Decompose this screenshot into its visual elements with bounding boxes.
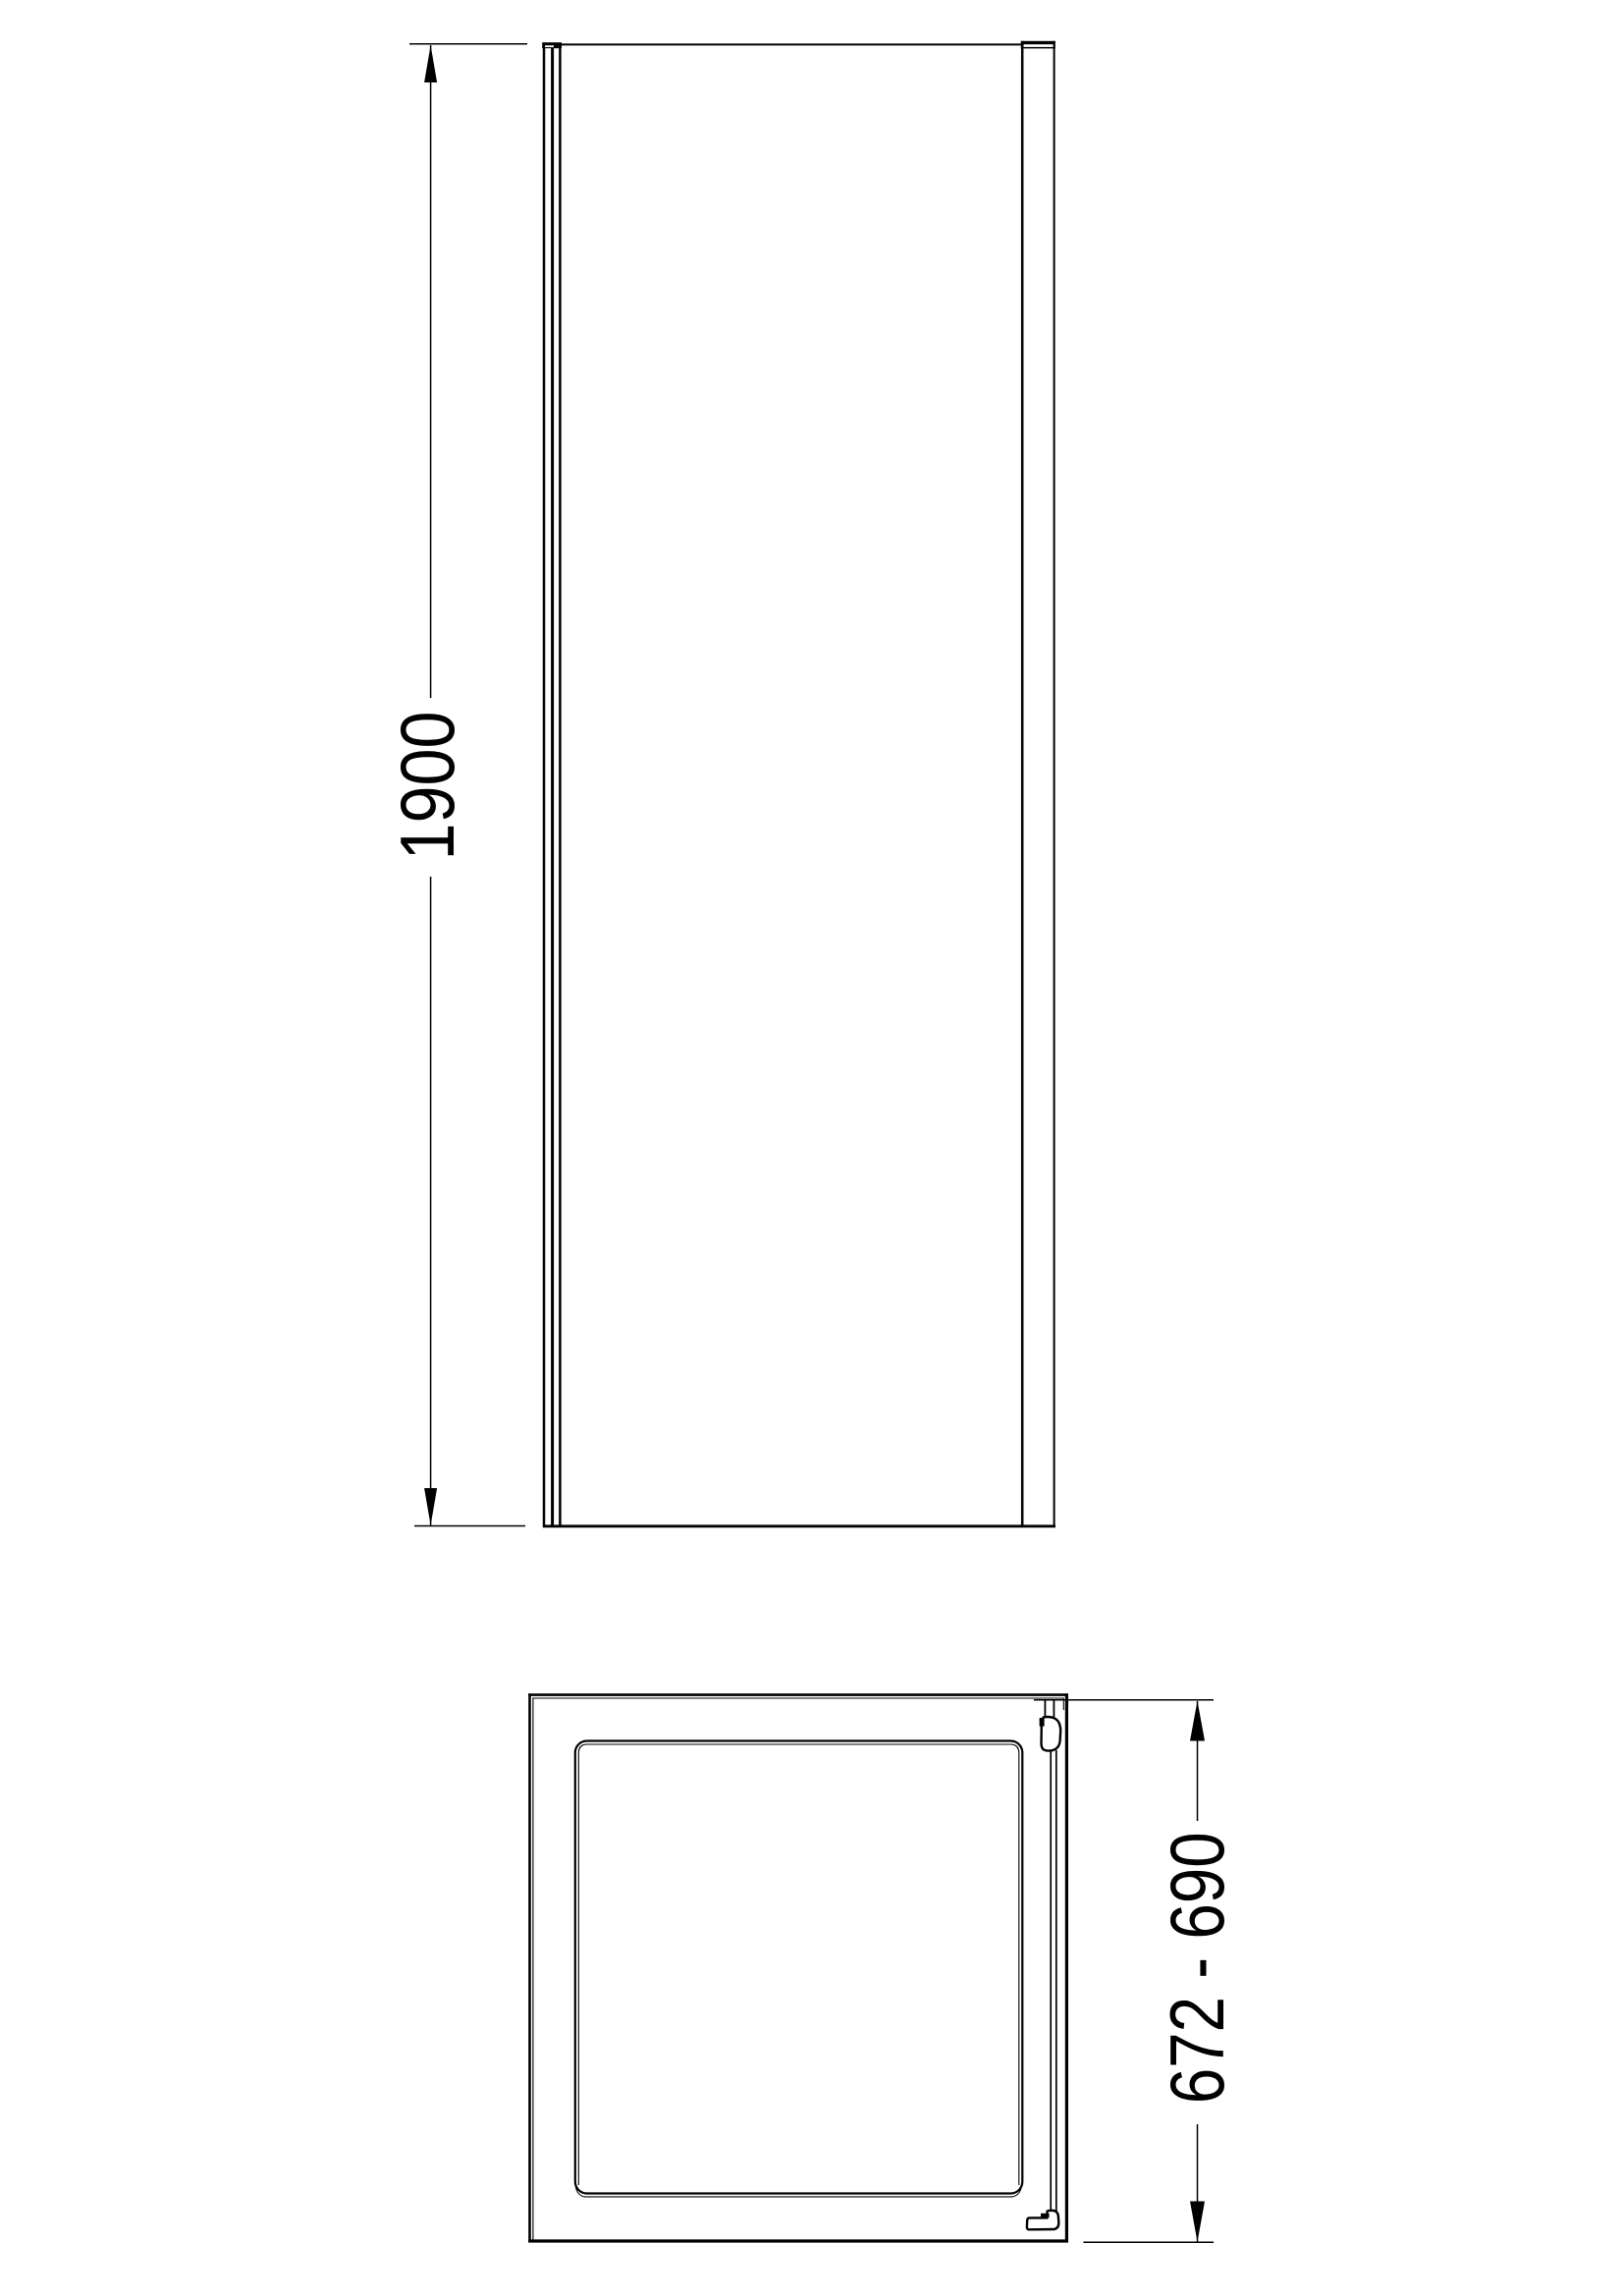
svg-text:672 - 690: 672 - 690 xyxy=(1154,1832,1240,2104)
svg-text:1900: 1900 xyxy=(384,712,470,861)
